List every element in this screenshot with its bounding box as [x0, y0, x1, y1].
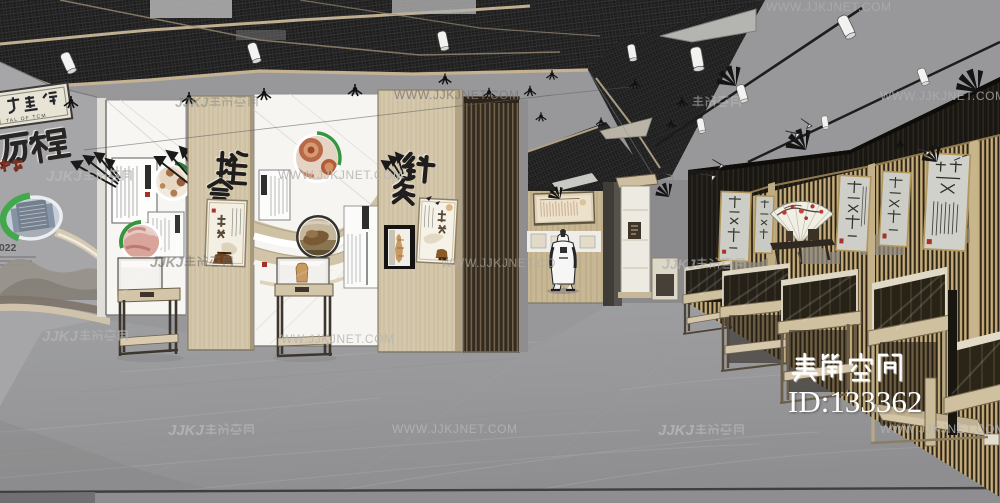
svg-text:WWW.JJKJNET.COM: WWW.JJKJNET.COM [880, 89, 1000, 103]
svg-text:ID:133362: ID:133362 [788, 384, 922, 419]
svg-text:JJKJ: JJKJ [150, 254, 185, 270]
svg-text:WWW.JJKJNET.COM: WWW.JJKJNET.COM [394, 88, 520, 102]
svg-text:JJKJ: JJKJ [42, 328, 79, 345]
svg-text:2022: 2022 [0, 242, 17, 254]
svg-text:JJKJ: JJKJ [168, 422, 205, 439]
svg-text:JJKJ: JJKJ [46, 168, 83, 185]
svg-text:WW.JJKJNET.COM: WW.JJKJNET.COM [281, 332, 395, 346]
svg-text:WWW.JJKJNET.CO: WWW.JJKJNET.CO [441, 256, 556, 270]
svg-text:JJKJ: JJKJ [662, 256, 697, 272]
svg-text:WWW.JJKJNET.COM: WWW.JJKJNET.COM [278, 168, 404, 182]
svg-text:WWW.JJKJNET.COM: WWW.JJKJNET.COM [392, 422, 518, 436]
svg-text:JJKJ: JJKJ [658, 422, 695, 439]
svg-text:WWW.JJKJNET.COM: WWW.JJKJNET.COM [766, 0, 892, 14]
svg-text:WWW.JJKJNET.COM: WWW.JJKJNET.COM [880, 422, 1000, 436]
svg-text:JJKJ: JJKJ [175, 94, 210, 110]
